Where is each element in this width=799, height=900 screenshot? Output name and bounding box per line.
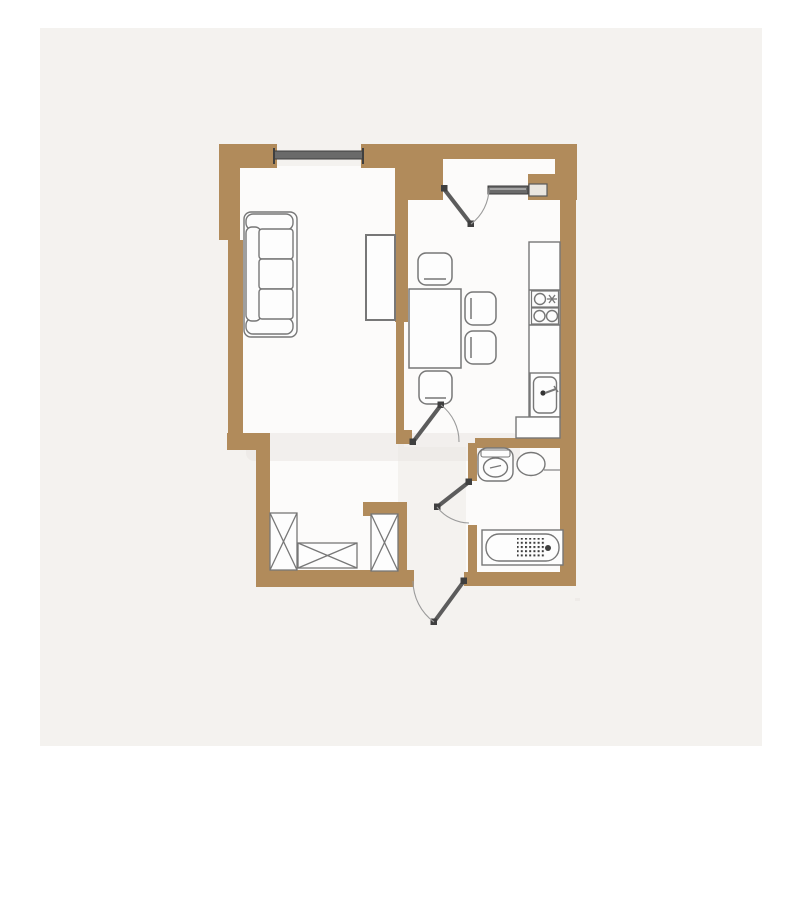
- toilet: [478, 448, 513, 481]
- exterior-door: [413, 578, 467, 626]
- wardrobe-right: [371, 514, 398, 571]
- wall-left-upper: [219, 144, 240, 240]
- appliance: [516, 417, 560, 438]
- wall-bottom-left: [256, 570, 414, 587]
- sofa: [244, 212, 297, 337]
- wall-bathroom-bottom: [464, 572, 576, 586]
- wall-left-lower: [256, 447, 270, 573]
- dining-table: [409, 289, 461, 368]
- wall-bathroom-top: [475, 438, 562, 448]
- floor-plan-drawing: [0, 0, 799, 900]
- wall-divider-thin: [396, 322, 404, 434]
- wall-right: [560, 200, 576, 586]
- bathtub: [482, 530, 563, 565]
- stool-top: [418, 253, 452, 285]
- stool-bottom: [419, 371, 452, 404]
- wall-bathroom-left-lower: [468, 525, 477, 578]
- stool-right-lower: [465, 331, 496, 364]
- cabinet: [366, 235, 395, 320]
- wall-top-right: [408, 144, 577, 159]
- entrance-sidelight: [488, 184, 547, 196]
- chest-of-drawers: [298, 543, 357, 568]
- stool-right-upper: [465, 292, 496, 325]
- wardrobe-left: [270, 513, 297, 570]
- window: [274, 148, 363, 164]
- wall-divider-thick: [395, 168, 408, 322]
- wall-bathroom-left-upper: [468, 443, 477, 481]
- page: [0, 0, 799, 900]
- wall-right-corner: [555, 144, 577, 200]
- kitchen-sink: [530, 373, 560, 417]
- wall-niche-left-block: [408, 159, 443, 200]
- wall-left-mid: [228, 240, 243, 440]
